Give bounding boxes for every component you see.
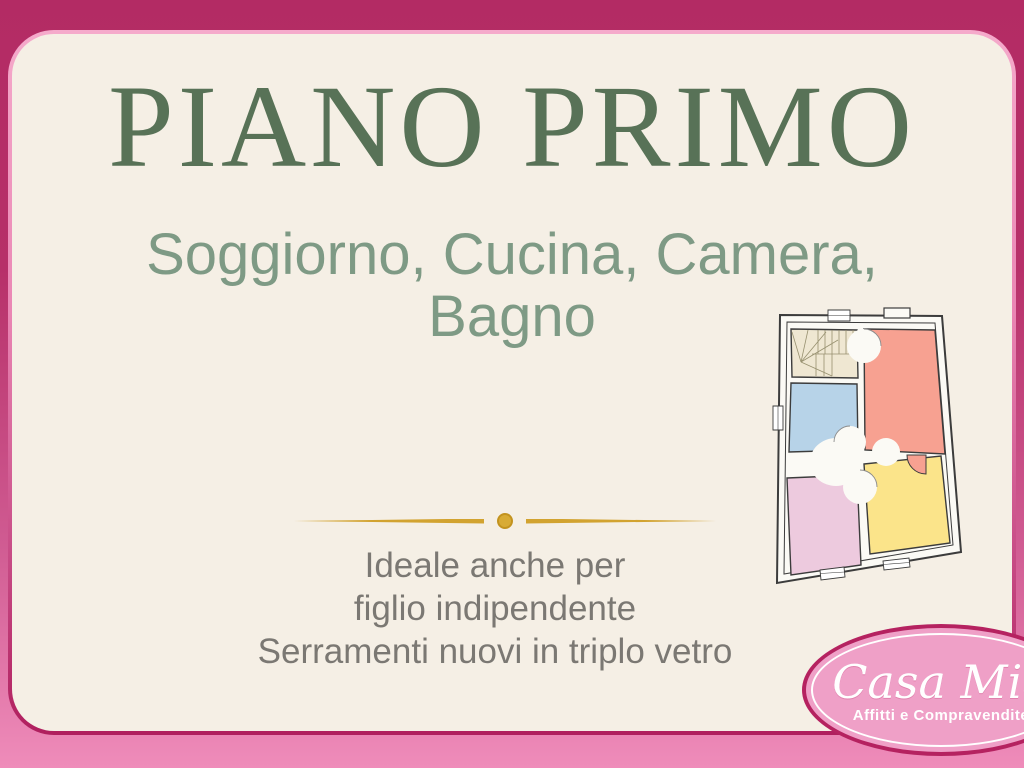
floorplan-stairs — [791, 329, 858, 378]
divider-line-right — [526, 519, 716, 524]
notes-line-1: Ideale anche per — [0, 544, 990, 587]
slide-canvas: { "slide": { "title": "PIANO PRIMO", "su… — [0, 0, 1024, 768]
subtitle-line-1: Soggiorno, Cucina, Camera, — [0, 224, 1024, 286]
divider-line-left — [294, 519, 484, 524]
notes-line-2: figlio indipendente — [0, 587, 990, 630]
page-title: PIANO PRIMO — [0, 68, 1024, 186]
gold-divider — [294, 513, 716, 529]
agency-logo-inner-ring — [811, 633, 1024, 747]
divider-dot-icon — [497, 513, 513, 529]
agency-logo-ellipse: Casa Mia Affitti e Compravendite — [806, 628, 1024, 752]
floorplan-top-niche — [884, 308, 910, 318]
floorplan-room-yellow — [864, 456, 950, 554]
